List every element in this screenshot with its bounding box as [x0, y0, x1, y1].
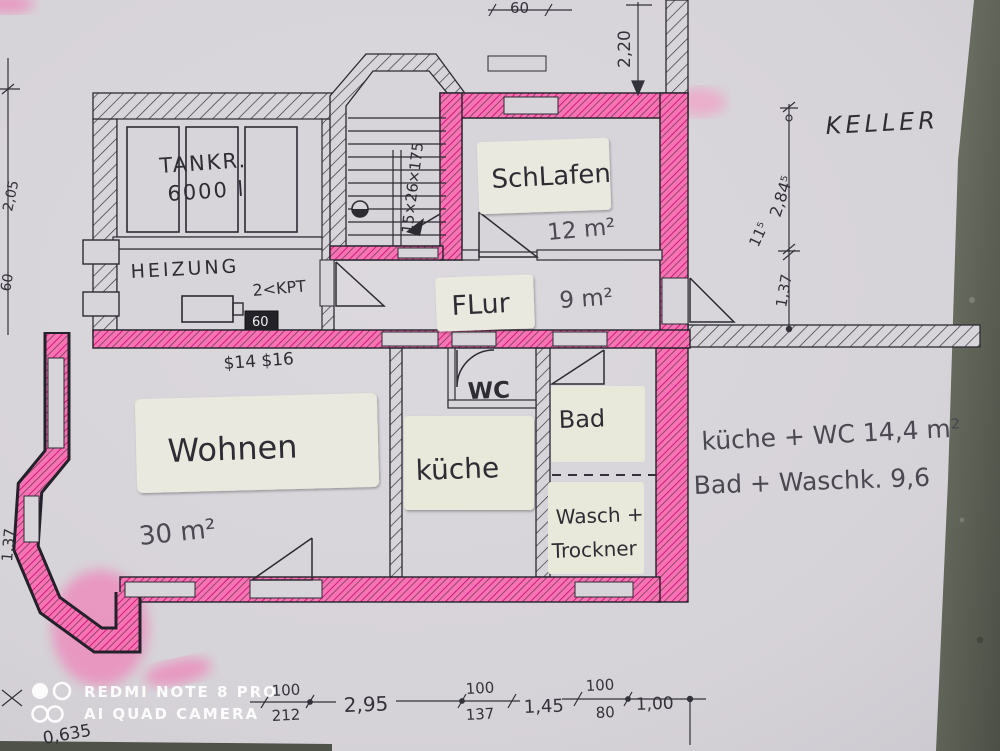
bad-label: Bad: [558, 404, 605, 434]
wasch-label-line2: Trockner: [550, 536, 638, 563]
flur-area: 9 m²: [559, 284, 614, 314]
wc-label: WC: [467, 378, 510, 405]
bay-window-glass-2: [24, 496, 39, 542]
bay-window-glass-1: [48, 358, 64, 448]
watermark-line2: AI QUAD CAMERA: [84, 705, 259, 723]
flur-door-opening-1: [382, 332, 438, 346]
wall-kueche-bad: [536, 348, 550, 577]
wohnen-label: Wohnen: [167, 427, 298, 470]
stairwell-interior: [346, 71, 448, 246]
dim-top-width: 60: [510, 0, 529, 17]
floor-plan-svg: 60: [0, 0, 1000, 751]
wall-top-right: [666, 0, 688, 95]
flur-west-opening: [320, 260, 334, 306]
bad-door-opening: [553, 332, 607, 346]
dim-b3: 1,45: [523, 696, 564, 718]
keller-label: KELLER: [825, 106, 940, 140]
south-window-2: [575, 582, 633, 597]
schlafen-window: [504, 97, 558, 114]
terrace-door-opening: [250, 580, 322, 598]
meter-box-label: 60: [252, 315, 269, 330]
dim-top-height: 2,20: [615, 30, 635, 68]
keller-door-opening: [662, 278, 688, 324]
kueche-label: küche: [415, 451, 500, 487]
dim-b4-under: 80: [595, 703, 615, 722]
dim-b5: 1,00: [635, 694, 674, 715]
wall-tank-north: [93, 93, 337, 120]
stair-north-window: [488, 56, 546, 71]
wc-door-opening: [452, 332, 496, 346]
wasch-label-line1: Wasch +: [555, 502, 644, 529]
dim-b2-under: 137: [465, 705, 495, 724]
south-window-1: [125, 582, 195, 597]
dim-b2-over: 100: [465, 679, 495, 698]
dim-b4-over: 100: [585, 676, 615, 695]
dim-left-side: 1,37: [0, 528, 19, 563]
watermark-line1: REDMI NOTE 8 PRO: [84, 683, 278, 701]
floor-plan-photo: 60: [0, 0, 1000, 751]
dim-b1: 2,95: [343, 691, 388, 717]
dim-b0-under: 212: [271, 706, 301, 725]
wall-schlafen-north: [440, 93, 688, 118]
flur-label: FLur: [451, 288, 512, 322]
wall-neighbor-east: [688, 325, 980, 347]
wall-east-lower: [656, 348, 688, 602]
wall-tank-heizung: [113, 237, 322, 249]
wc-wall-west: [448, 348, 455, 406]
schlafen-label: SchLafen: [491, 159, 612, 195]
stair-door-opening: [398, 248, 438, 258]
wall-wohnen-kueche: [390, 348, 402, 577]
